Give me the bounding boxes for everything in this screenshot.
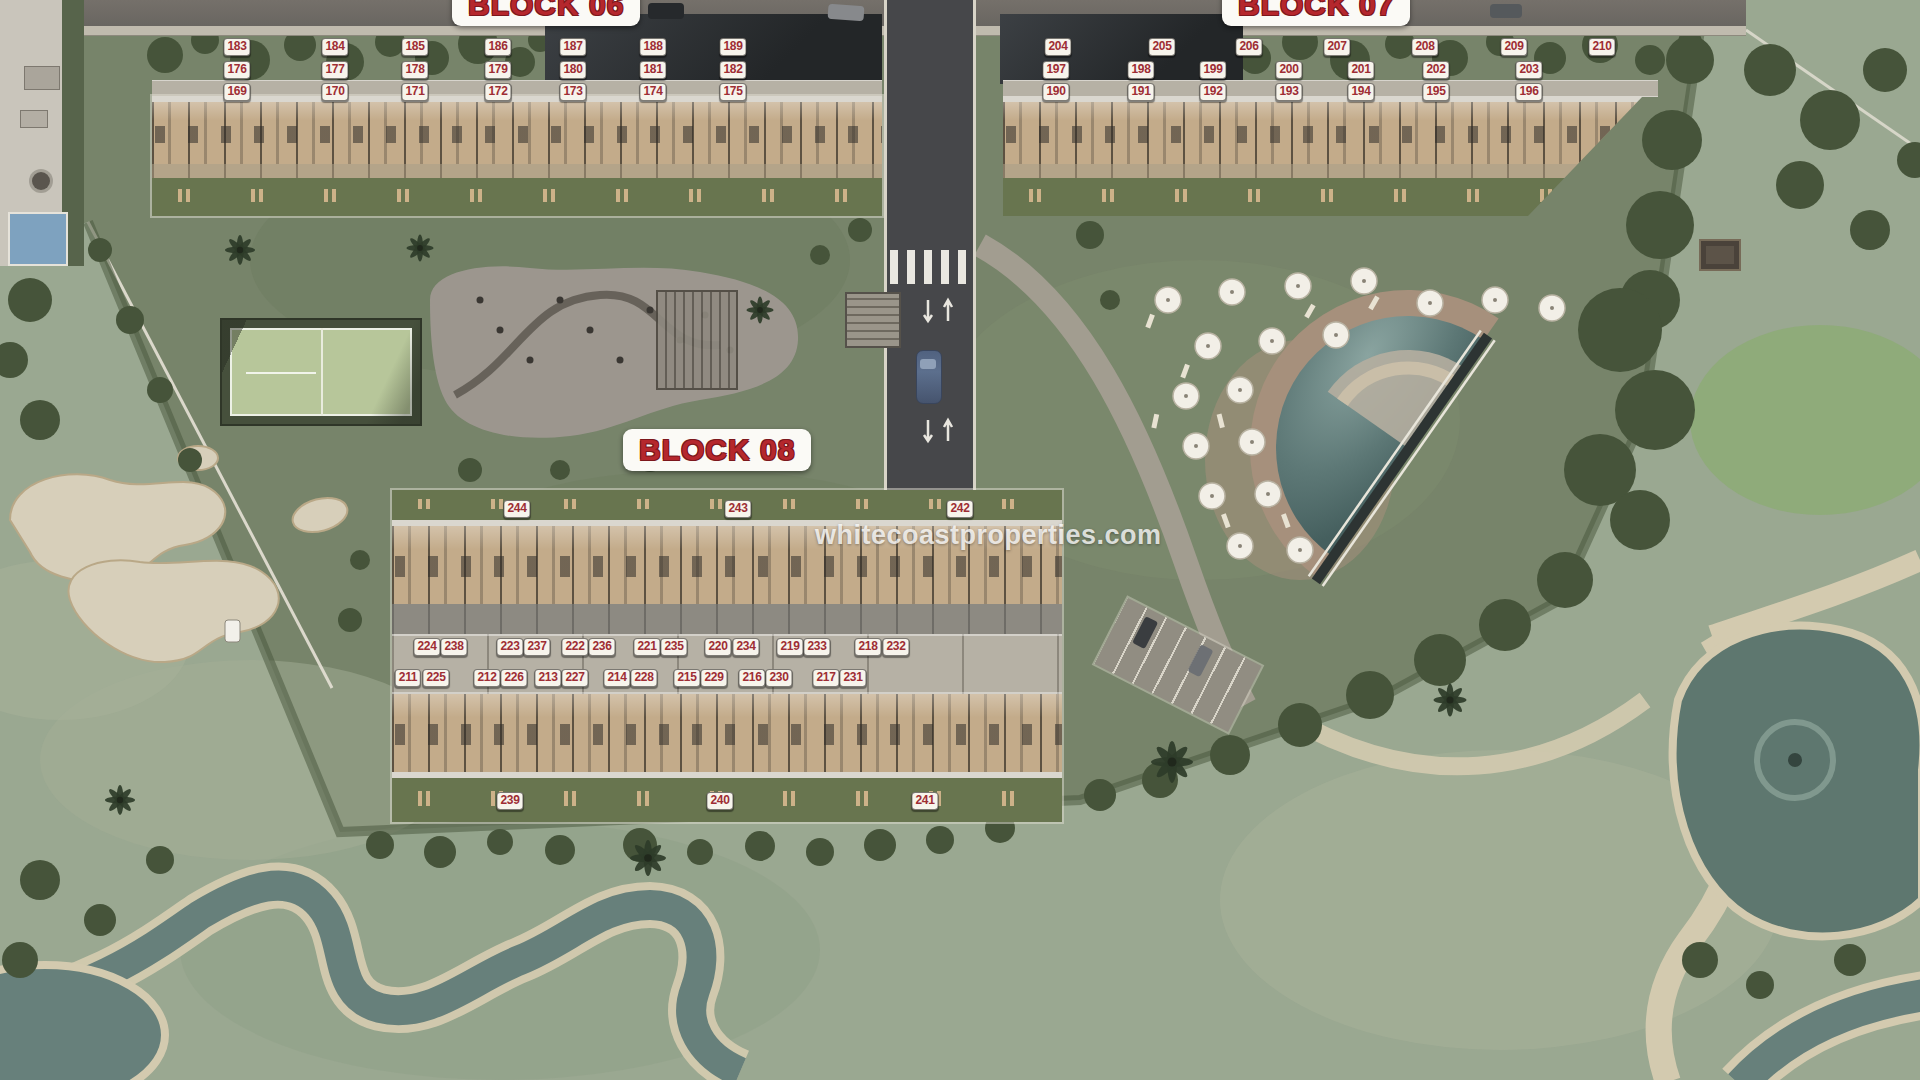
unit-badge-224[interactable]: 224 xyxy=(413,638,440,656)
unit-badge-169[interactable]: 169 xyxy=(223,83,250,101)
unit-badge-194[interactable]: 194 xyxy=(1347,83,1374,101)
unit-badge-185[interactable]: 185 xyxy=(401,38,428,56)
unit-badge-204[interactable]: 204 xyxy=(1044,38,1071,56)
unit-badge-177[interactable]: 177 xyxy=(321,61,348,79)
unit-badge-242[interactable]: 242 xyxy=(946,500,973,518)
unit-badge-212[interactable]: 212 xyxy=(473,669,500,687)
unit-badge-178[interactable]: 178 xyxy=(401,61,428,79)
unit-badge-216[interactable]: 216 xyxy=(738,669,765,687)
unit-badge-238[interactable]: 238 xyxy=(440,638,467,656)
unit-badge-231[interactable]: 231 xyxy=(839,669,866,687)
watermark: whitecoastproperties.com xyxy=(815,520,1162,551)
unit-badge-213[interactable]: 213 xyxy=(534,669,561,687)
unit-badge-192[interactable]: 192 xyxy=(1199,83,1226,101)
unit-badge-229[interactable]: 229 xyxy=(700,669,727,687)
siteplan-aerial-view: BLOCK 06 BLOCK 07 BLOCK 08 1831841851861… xyxy=(0,0,1920,1080)
unit-badge-221[interactable]: 221 xyxy=(633,638,660,656)
unit-badge-233[interactable]: 233 xyxy=(803,638,830,656)
unit-badge-237[interactable]: 237 xyxy=(523,638,550,656)
unit-badge-215[interactable]: 215 xyxy=(673,669,700,687)
block-08-label: BLOCK 08 xyxy=(623,429,811,471)
unit-badge-218[interactable]: 218 xyxy=(854,638,881,656)
unit-badge-241[interactable]: 241 xyxy=(911,792,938,810)
unit-badge-219[interactable]: 219 xyxy=(776,638,803,656)
unit-badge-193[interactable]: 193 xyxy=(1275,83,1302,101)
unit-badge-190[interactable]: 190 xyxy=(1042,83,1069,101)
unit-badge-186[interactable]: 186 xyxy=(484,38,511,56)
unit-badge-189[interactable]: 189 xyxy=(719,38,746,56)
unit-badge-200[interactable]: 200 xyxy=(1275,61,1302,79)
unit-badge-174[interactable]: 174 xyxy=(639,83,666,101)
unit-badge-171[interactable]: 171 xyxy=(401,83,428,101)
unit-badge-183[interactable]: 183 xyxy=(223,38,250,56)
unit-badge-195[interactable]: 195 xyxy=(1422,83,1449,101)
unit-badge-182[interactable]: 182 xyxy=(719,61,746,79)
unit-badge-181[interactable]: 181 xyxy=(639,61,666,79)
unit-badge-228[interactable]: 228 xyxy=(630,669,657,687)
unit-badge-227[interactable]: 227 xyxy=(561,669,588,687)
unit-badge-187[interactable]: 187 xyxy=(559,38,586,56)
unit-badge-235[interactable]: 235 xyxy=(660,638,687,656)
unit-badge-180[interactable]: 180 xyxy=(559,61,586,79)
unit-badge-191[interactable]: 191 xyxy=(1127,83,1154,101)
unit-badge-236[interactable]: 236 xyxy=(588,638,615,656)
unit-badge-230[interactable]: 230 xyxy=(765,669,792,687)
unit-badge-217[interactable]: 217 xyxy=(812,669,839,687)
unit-badge-240[interactable]: 240 xyxy=(706,792,733,810)
unit-badge-184[interactable]: 184 xyxy=(321,38,348,56)
unit-badge-188[interactable]: 188 xyxy=(639,38,666,56)
unit-badge-234[interactable]: 234 xyxy=(732,638,759,656)
unit-badge-244[interactable]: 244 xyxy=(503,500,530,518)
unit-badge-170[interactable]: 170 xyxy=(321,83,348,101)
unit-badge-210[interactable]: 210 xyxy=(1588,38,1615,56)
unit-badge-239[interactable]: 239 xyxy=(496,792,523,810)
unit-badge-196[interactable]: 196 xyxy=(1515,83,1542,101)
unit-badge-176[interactable]: 176 xyxy=(223,61,250,79)
unit-badge-198[interactable]: 198 xyxy=(1127,61,1154,79)
unit-badge-223[interactable]: 223 xyxy=(496,638,523,656)
unit-badge-201[interactable]: 201 xyxy=(1347,61,1374,79)
unit-badge-225[interactable]: 225 xyxy=(422,669,449,687)
unit-badge-220[interactable]: 220 xyxy=(704,638,731,656)
unit-badge-199[interactable]: 199 xyxy=(1199,61,1226,79)
unit-badge-179[interactable]: 179 xyxy=(484,61,511,79)
unit-badge-222[interactable]: 222 xyxy=(561,638,588,656)
unit-badge-243[interactable]: 243 xyxy=(724,500,751,518)
unit-badge-175[interactable]: 175 xyxy=(719,83,746,101)
unit-badge-209[interactable]: 209 xyxy=(1500,38,1527,56)
unit-badge-203[interactable]: 203 xyxy=(1515,61,1542,79)
block-07-label: BLOCK 07 xyxy=(1222,0,1410,26)
unit-badge-172[interactable]: 172 xyxy=(484,83,511,101)
unit-badge-206[interactable]: 206 xyxy=(1235,38,1262,56)
unit-badge-208[interactable]: 208 xyxy=(1411,38,1438,56)
unit-badge-226[interactable]: 226 xyxy=(500,669,527,687)
unit-badge-211[interactable]: 211 xyxy=(395,669,421,687)
unit-badge-205[interactable]: 205 xyxy=(1148,38,1175,56)
unit-badge-232[interactable]: 232 xyxy=(882,638,909,656)
unit-badge-214[interactable]: 214 xyxy=(603,669,630,687)
unit-badge-207[interactable]: 207 xyxy=(1323,38,1350,56)
unit-badge-173[interactable]: 173 xyxy=(559,83,586,101)
unit-badge-197[interactable]: 197 xyxy=(1042,61,1069,79)
unit-badge-202[interactable]: 202 xyxy=(1422,61,1449,79)
block-06-label: BLOCK 06 xyxy=(452,0,640,26)
